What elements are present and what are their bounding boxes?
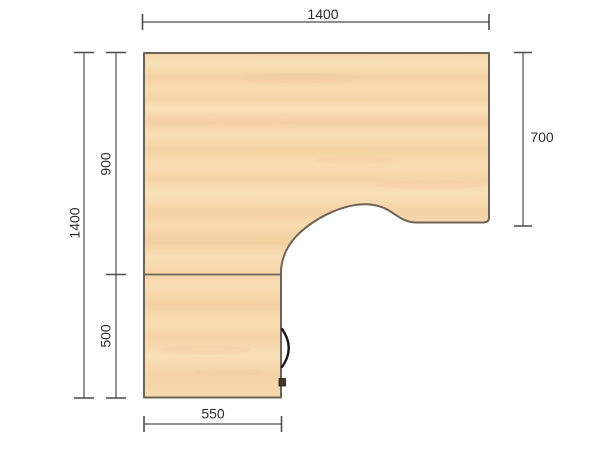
dimension-bottom-width: 550 xyxy=(144,406,282,433)
dimension-label-left-lower: 500 xyxy=(98,324,114,348)
dimension-label-left-upper: 900 xyxy=(98,152,114,176)
dimension-right-depth: 700 xyxy=(514,53,554,227)
dimension-label-top-width: 1400 xyxy=(307,6,338,22)
door-swing-arc xyxy=(282,329,289,367)
dimension-left-sections: 900 500 xyxy=(98,53,127,399)
dimension-top-width: 1400 xyxy=(143,6,490,30)
hinge-block xyxy=(279,379,286,387)
dimension-label-left-total: 1400 xyxy=(67,207,83,238)
dimension-label-bottom-width: 550 xyxy=(201,406,225,422)
dimension-label-right-depth: 700 xyxy=(530,129,554,145)
dimension-left-total: 1400 xyxy=(67,53,95,399)
desk-plan-svg: 1400 1400 900 500 700 xyxy=(0,0,600,450)
desk-plan-drawing: 1400 1400 900 500 700 xyxy=(0,0,600,450)
